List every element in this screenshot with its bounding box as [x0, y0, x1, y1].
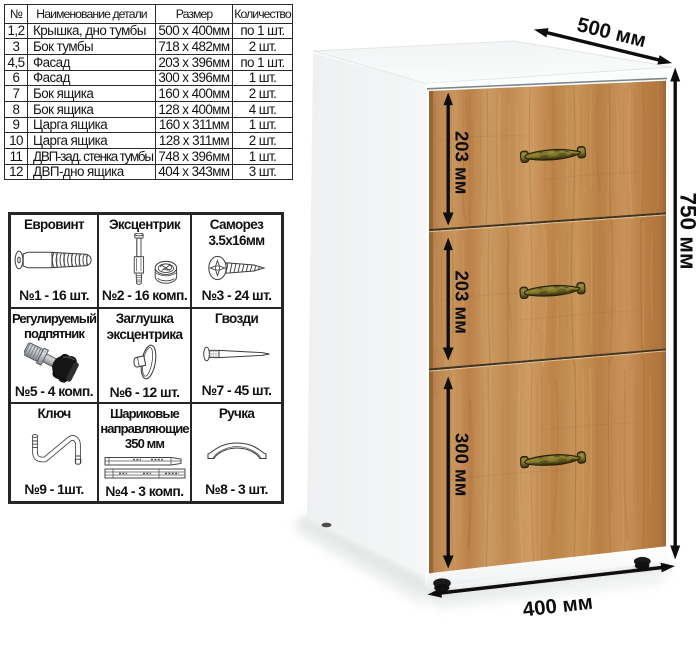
- svg-text:203 мм: 203 мм: [452, 271, 473, 334]
- svg-text:500 мм: 500 мм: [575, 13, 649, 52]
- svg-text:203 мм: 203 мм: [452, 131, 473, 194]
- svg-text:300 мм: 300 мм: [452, 433, 473, 496]
- svg-text:750 мм: 750 мм: [676, 193, 700, 270]
